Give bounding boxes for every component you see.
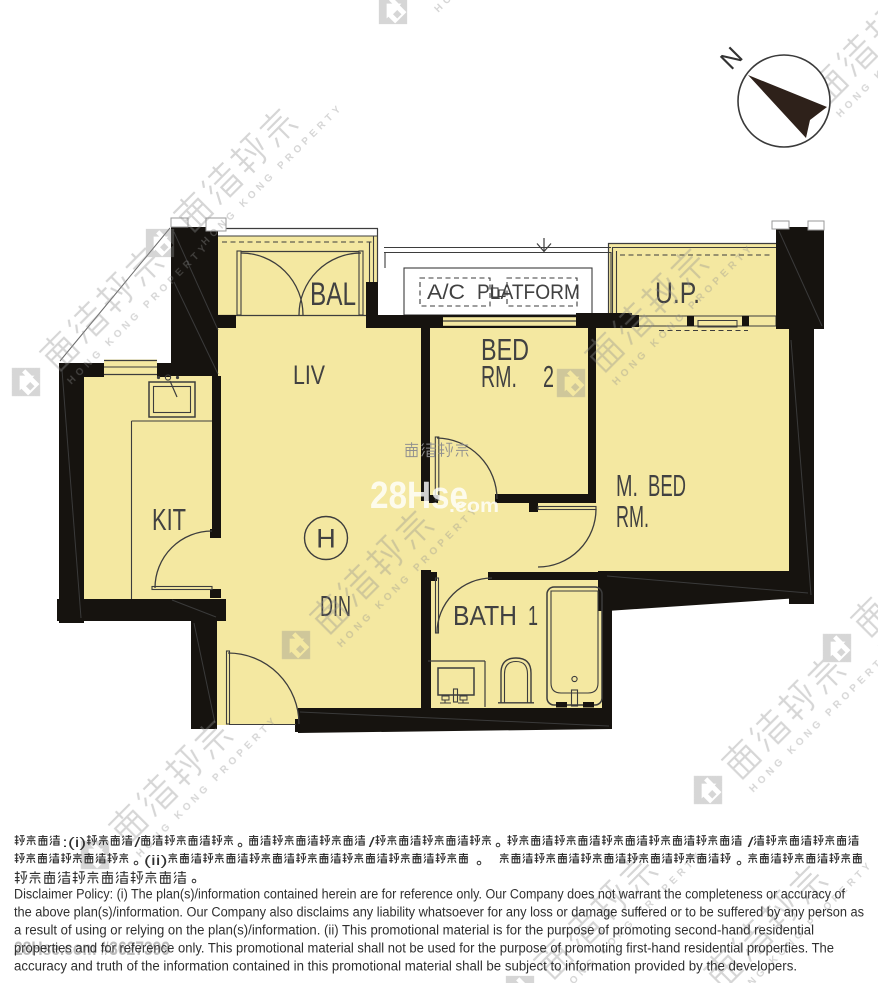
svg-text:/: / bbox=[369, 835, 375, 851]
svg-text:/: / bbox=[748, 835, 754, 851]
svg-text:the above plan(s)/information.: the above plan(s)/information. Our Compa… bbox=[14, 905, 864, 921]
svg-text:accuracy and truth of the info: accuracy and truth of the information co… bbox=[14, 959, 797, 975]
svg-text:(ii): (ii) bbox=[144, 853, 168, 869]
svg-text:Disclaimer Policy: (i) The pla: Disclaimer Policy: (i) The plan(s)/infor… bbox=[14, 887, 845, 903]
svg-text::(i): :(i) bbox=[62, 835, 86, 851]
svg-text:properties and for reference o: properties and for reference only. This … bbox=[14, 941, 834, 957]
svg-text:/: / bbox=[134, 835, 140, 851]
svg-text:a result of using or relying o: a result of using or relying on the plan… bbox=[14, 923, 814, 939]
